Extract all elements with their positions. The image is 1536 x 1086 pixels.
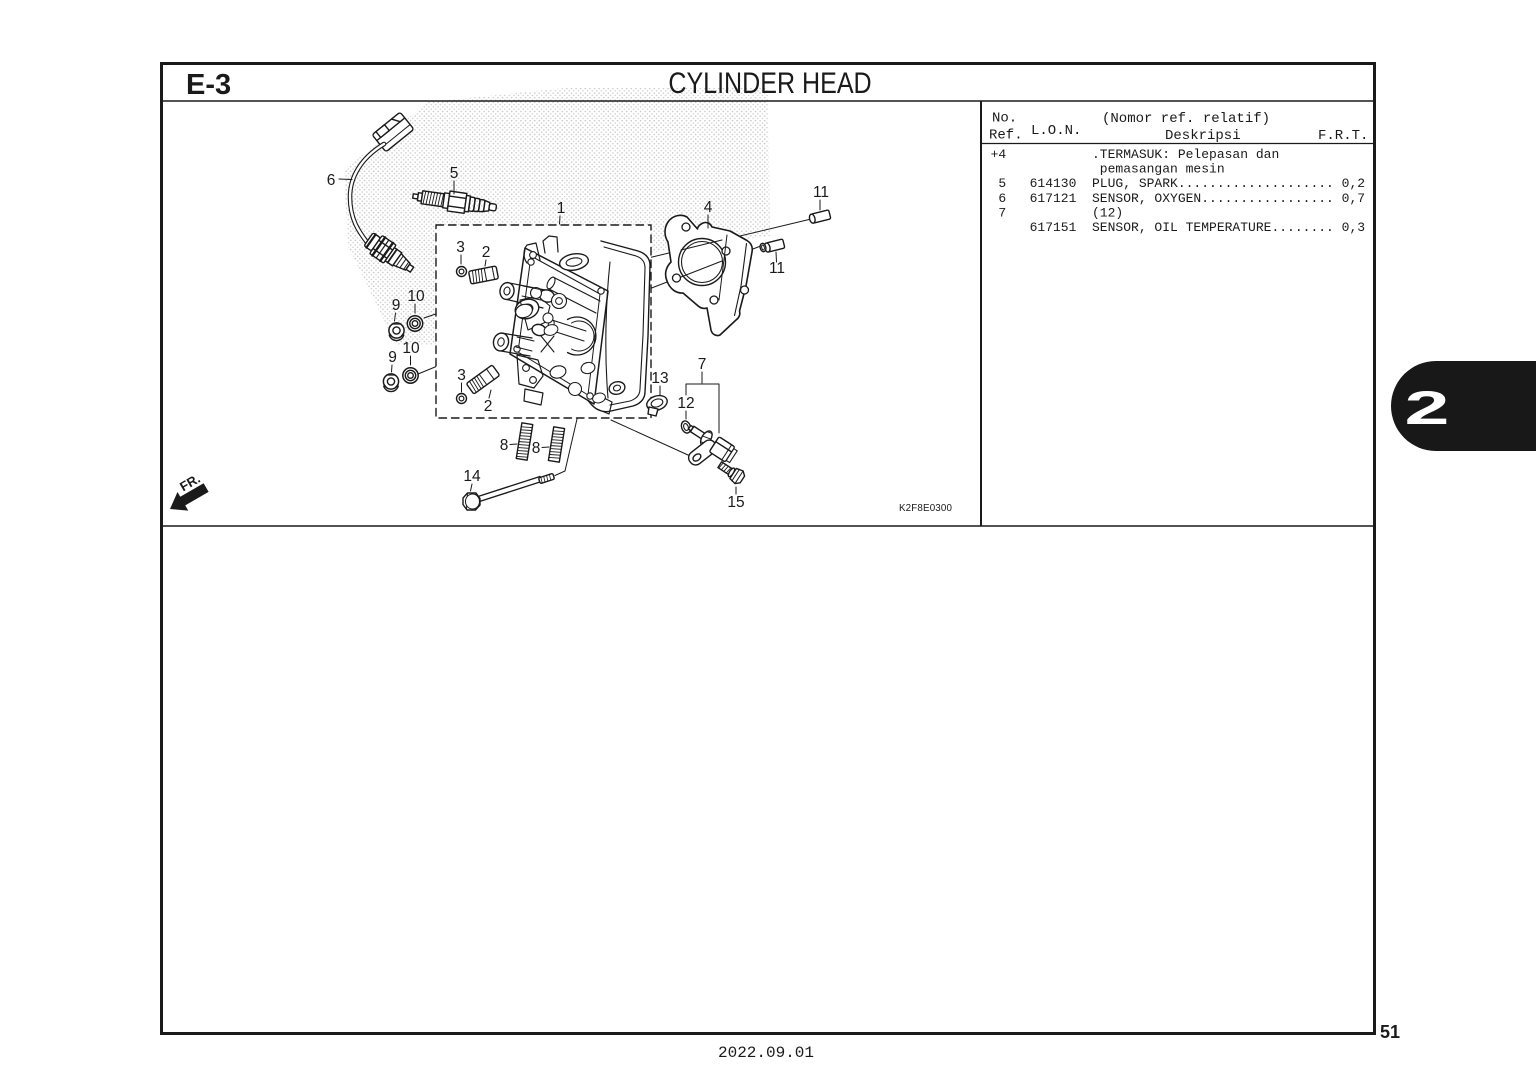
svg-text:L.O.N.: L.O.N.	[1031, 123, 1081, 139]
svg-text:14: 14	[463, 468, 481, 485]
svg-text:7: 7	[698, 356, 707, 373]
svg-text:10: 10	[407, 288, 425, 305]
svg-text:3: 3	[456, 239, 465, 256]
svg-text:8: 8	[500, 437, 509, 454]
svg-text:+4 .TERMASUK: Pelepa: +4 .TERMASUK: Pelepasan dan	[991, 147, 1280, 162]
svg-text:K2F8E0300: K2F8E0300	[899, 503, 952, 514]
svg-text:No.: No.	[992, 111, 1017, 127]
svg-text:4: 4	[704, 199, 713, 216]
svg-text:1: 1	[557, 200, 566, 217]
svg-text:F.R.T.: F.R.T.	[1318, 128, 1368, 144]
svg-text:6: 6	[327, 172, 336, 189]
svg-text:11: 11	[769, 260, 785, 277]
svg-text:CYLINDER HEAD: CYLINDER HEAD	[668, 66, 871, 99]
svg-text:Deskripsi: Deskripsi	[1165, 128, 1241, 144]
svg-text:5: 5	[450, 165, 459, 182]
svg-text:5 614130 PLUG, SPARK.......: 5 614130 PLUG, SPARK....................…	[991, 176, 1365, 191]
svg-text:15: 15	[727, 494, 744, 511]
svg-text:(Nomor ref. relatif): (Nomor ref. relatif)	[1102, 111, 1270, 127]
svg-text:pemasangan mesin: pemasangan mesin	[991, 162, 1225, 177]
svg-text:10: 10	[402, 340, 420, 357]
svg-text:8: 8	[532, 440, 541, 457]
svg-text:2: 2	[484, 398, 493, 415]
svg-text:9: 9	[392, 297, 401, 314]
svg-text:6 617121 SENSOR, OXYGEN....: 6 617121 SENSOR, OXYGEN.................…	[991, 191, 1365, 206]
svg-text:2: 2	[482, 244, 491, 261]
svg-text:12: 12	[677, 395, 694, 412]
svg-text:3: 3	[457, 367, 466, 384]
svg-text:51: 51	[1380, 1022, 1400, 1042]
svg-text:2: 2	[1405, 382, 1450, 435]
svg-text:13: 13	[651, 370, 668, 387]
svg-text:9: 9	[388, 349, 397, 366]
svg-text:7 (12): 7 (12)	[991, 205, 1124, 220]
svg-text:617151 SENSOR, OIL TEMPERATUR: 617151 SENSOR, OIL TEMPERATURE........ 0…	[991, 220, 1365, 235]
svg-text:E-3: E-3	[186, 69, 231, 101]
svg-text:2022.09.01: 2022.09.01	[718, 1044, 814, 1062]
svg-text:Ref.: Ref.	[989, 128, 1023, 144]
svg-text:11: 11	[813, 184, 829, 201]
